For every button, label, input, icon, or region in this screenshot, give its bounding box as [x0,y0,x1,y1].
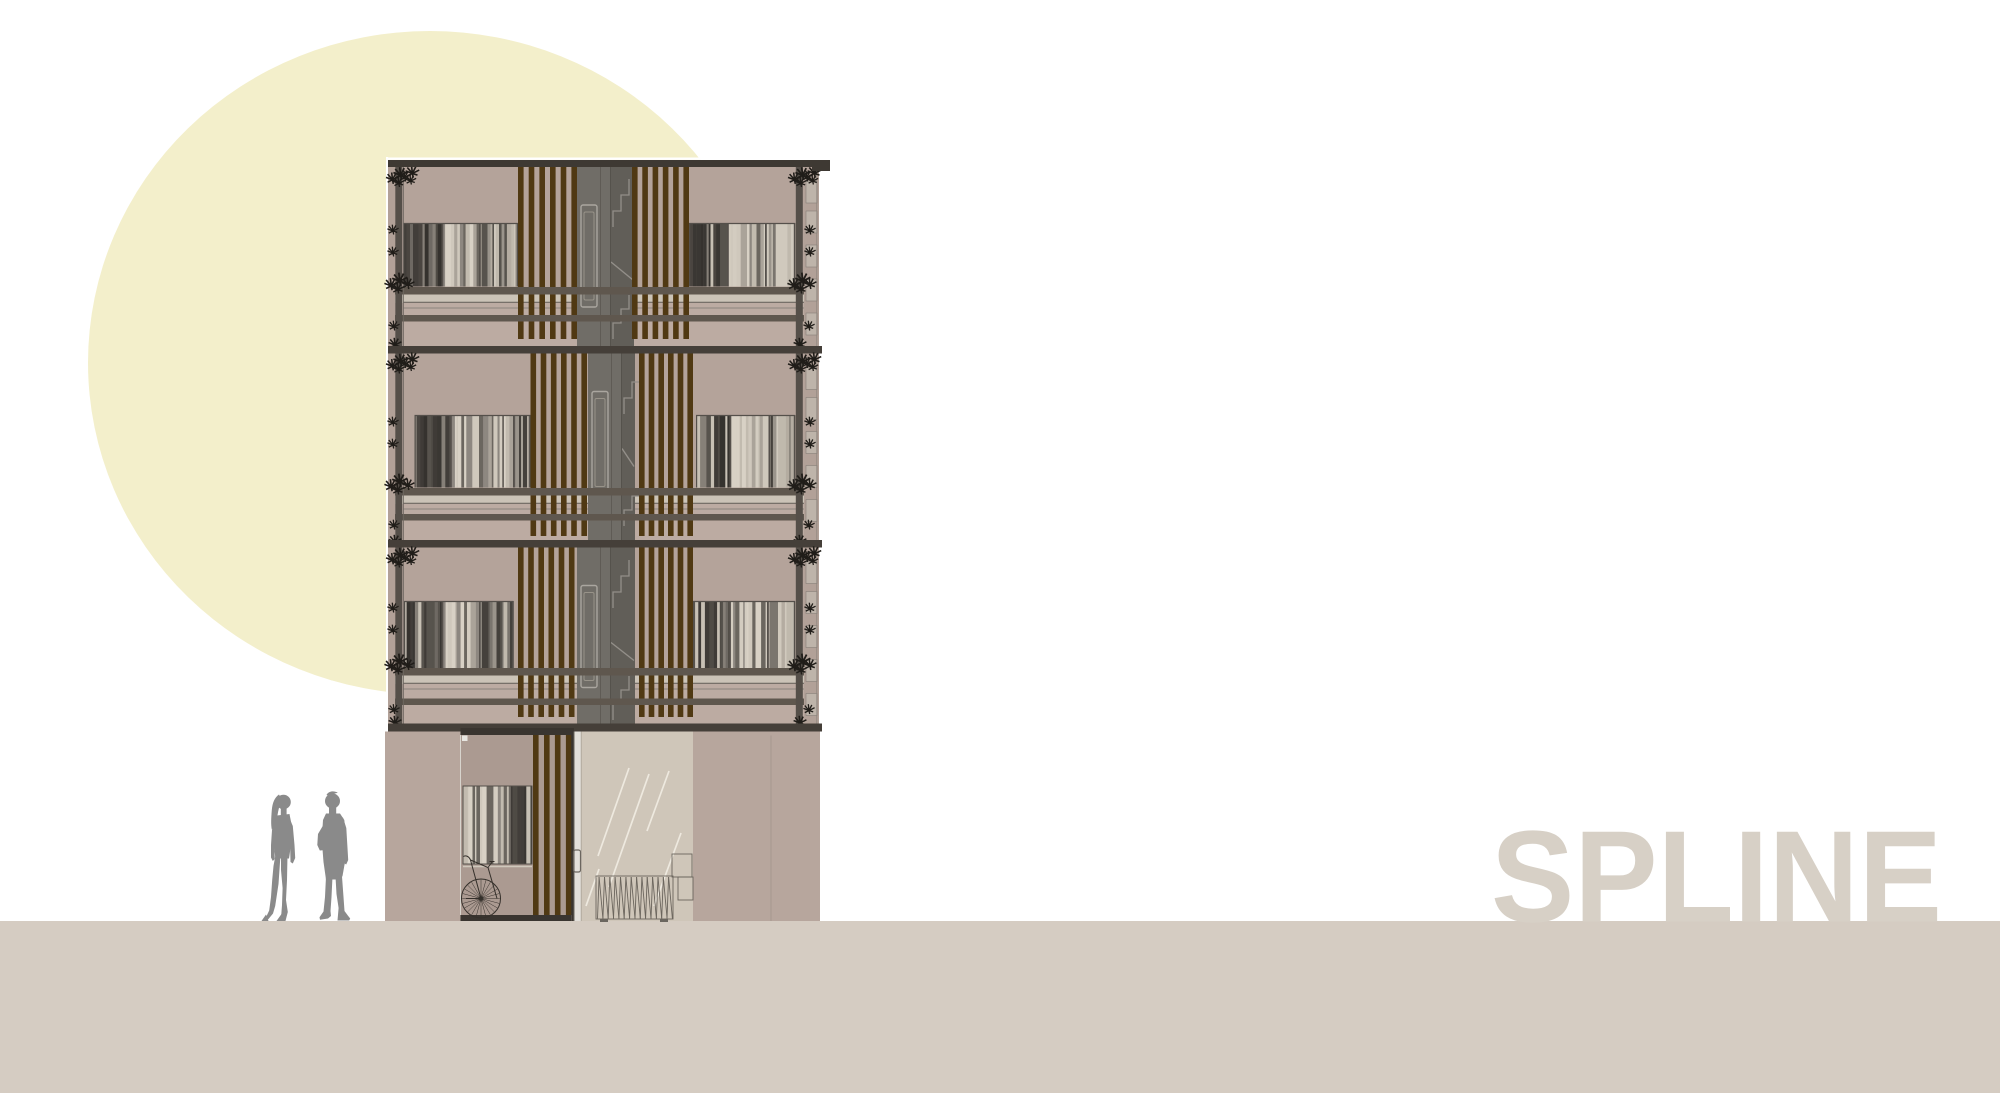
svg-text:SPLINE: SPLINE [1491,804,1942,950]
